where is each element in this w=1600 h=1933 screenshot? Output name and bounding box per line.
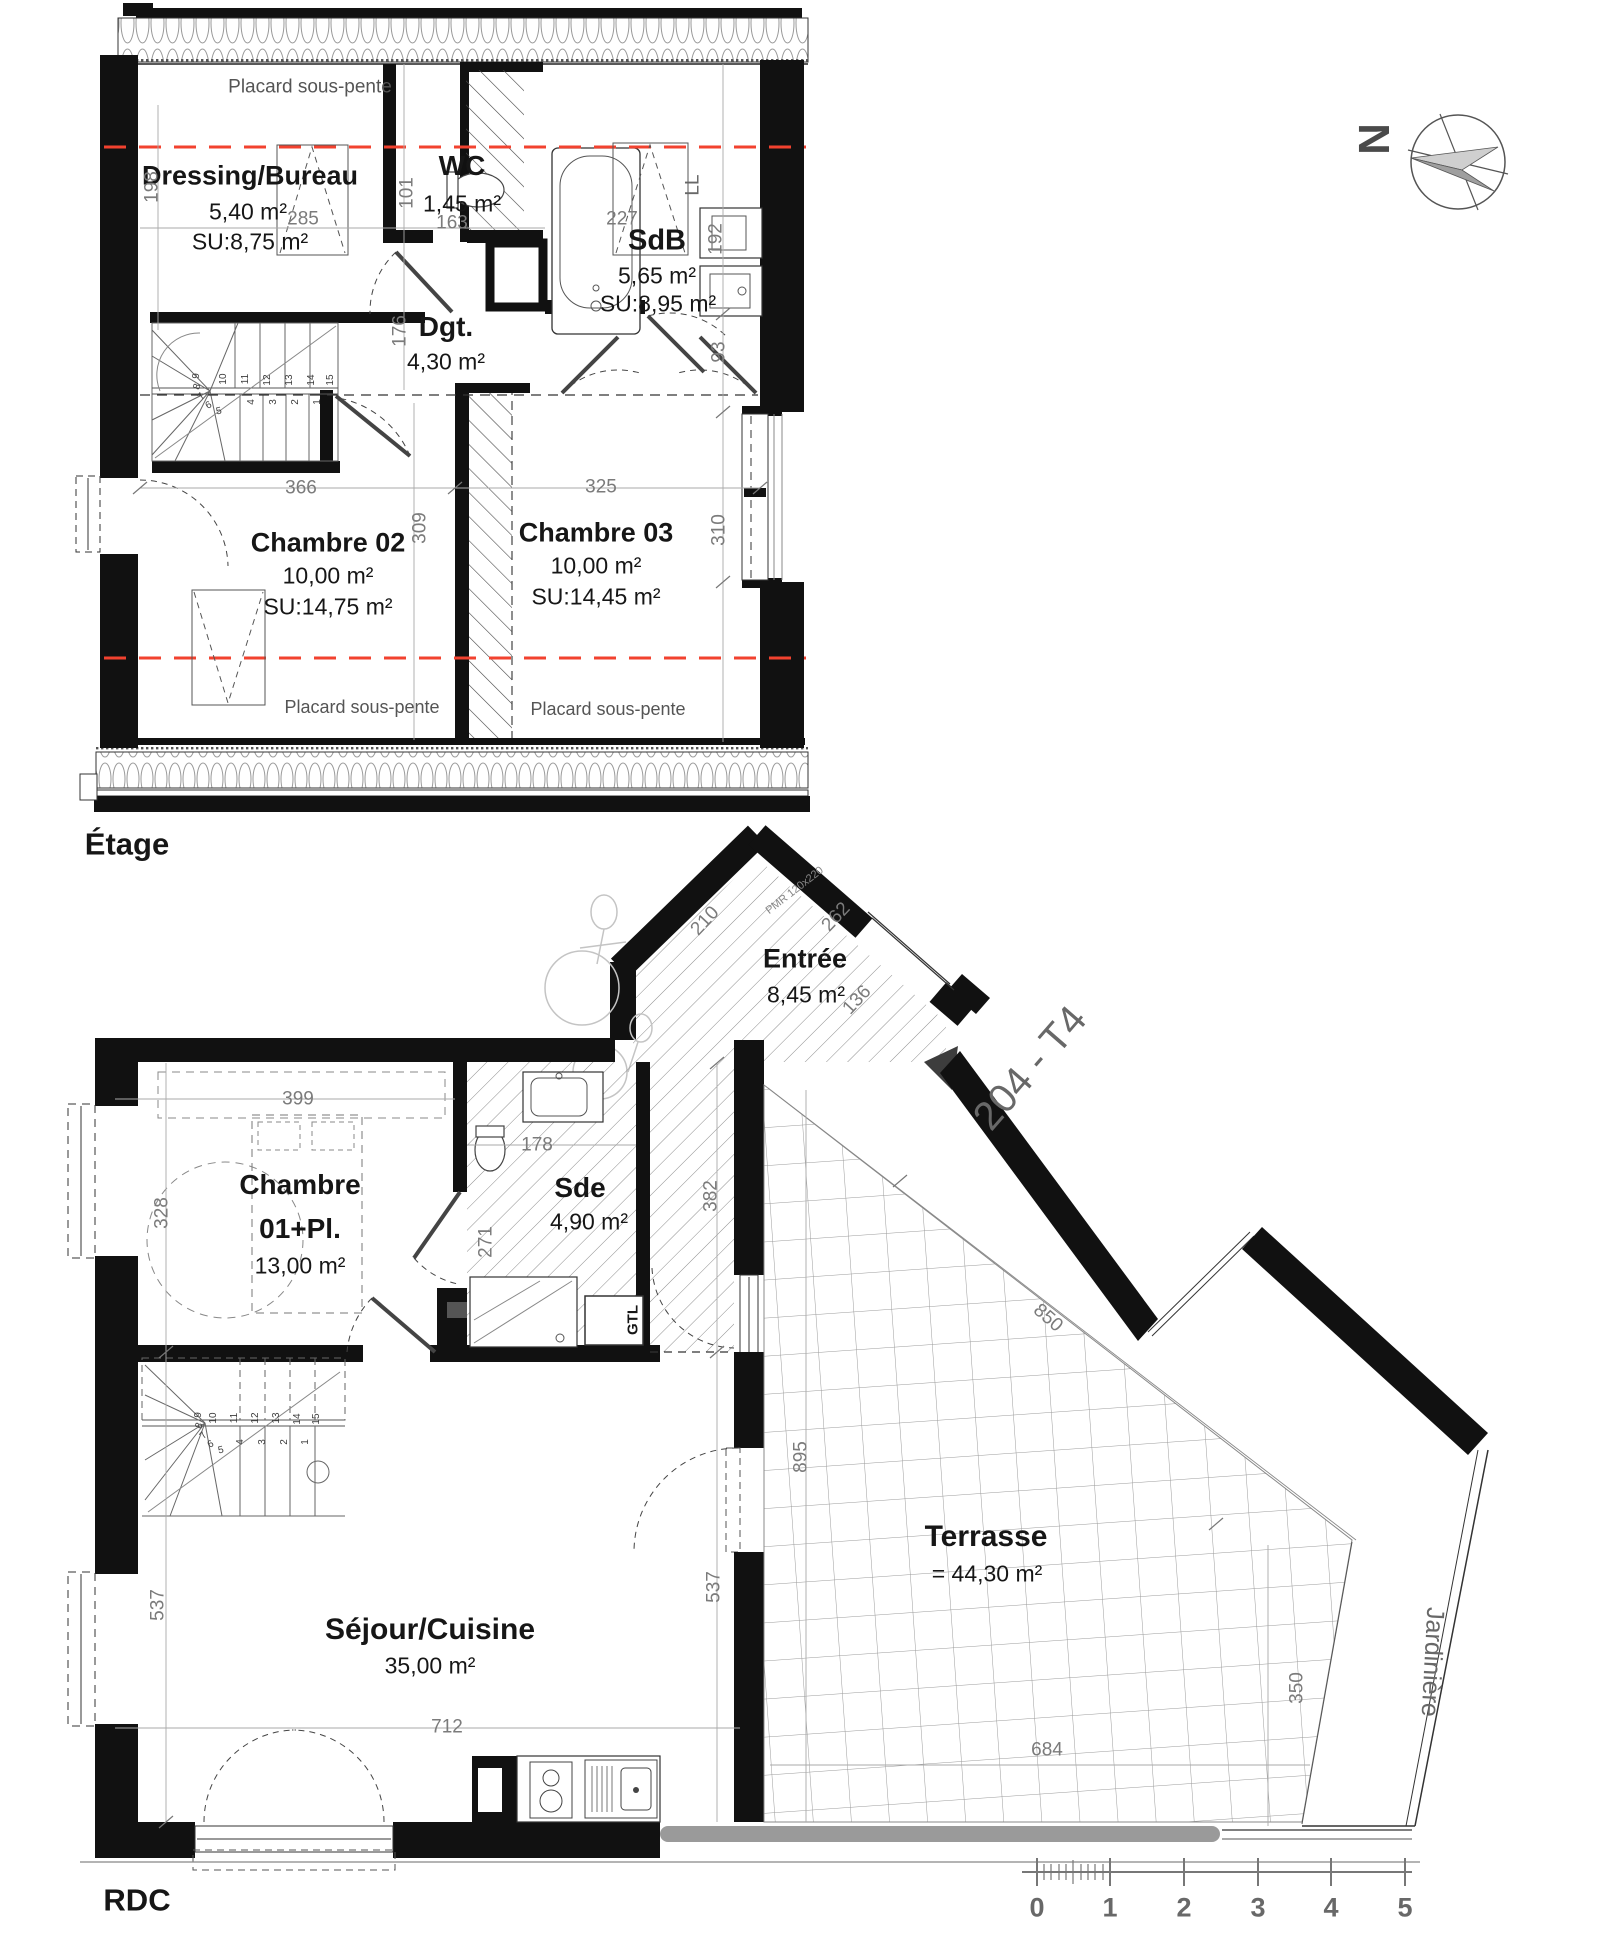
dimension-label: 382 — [702, 1180, 721, 1212]
dimension-label: 325 — [585, 478, 617, 497]
dimension-label: 310 — [710, 514, 729, 546]
dimension-label: 178 — [521, 1136, 553, 1155]
room-chambre03-name: Chambre 03 — [519, 520, 674, 547]
dimension-label: 366 — [285, 479, 317, 498]
stair-step-number: 11 — [230, 1413, 240, 1423]
room-chambre01-name-line2: 01+Pl. — [259, 1215, 341, 1243]
room-sdb-name: SdB — [628, 227, 686, 256]
placard-bottom-right-label: Placard sous-pente — [530, 700, 685, 718]
room-sde-area: 4,90 m² — [550, 1211, 628, 1234]
stair-step-number: 5 — [215, 407, 223, 418]
stair-step-number: 4 — [247, 399, 257, 405]
stair-step-number: 15 — [312, 1413, 322, 1424]
scale-label-4: 4 — [1323, 1895, 1338, 1922]
stair-step-number: 3 — [269, 399, 279, 405]
room-terrasse-area: = 44,30 m² — [932, 1563, 1043, 1586]
dimension-label: 227 — [606, 210, 638, 229]
dimension-label: 176 — [391, 315, 410, 347]
room-chambre03-su: SU:14,45 m² — [531, 586, 660, 609]
room-dgt-name: Dgt. — [419, 313, 473, 341]
stair-step-number: 14 — [307, 374, 317, 385]
dimension-label: 163 — [436, 214, 468, 233]
compass-north-label: N — [1353, 123, 1397, 155]
dimension-label: 399 — [282, 1090, 314, 1109]
room-entree-name: Entrée — [763, 946, 847, 973]
room-dgt-area: 4,30 m² — [407, 351, 485, 374]
stair-step-number: 12 — [263, 374, 273, 385]
placard-bottom-left-label: Placard sous-pente — [284, 698, 439, 716]
dimension-label: 192 — [707, 223, 726, 255]
stair-step-number: 13 — [272, 1412, 282, 1423]
etage-plan — [76, 3, 810, 812]
room-chambre01-name-line1: Chambre — [239, 1171, 360, 1199]
jardiniere-label: Jardinière — [1417, 1607, 1448, 1718]
stair-step-number: 2 — [291, 399, 301, 405]
room-chambre01-area: 13,00 m² — [255, 1255, 346, 1278]
scale-label-5: 5 — [1397, 1895, 1412, 1922]
dimension-label: 328 — [153, 1197, 172, 1229]
room-sdb-area: 5,65 m² — [618, 265, 696, 288]
room-chambre02-su: SU:14,75 m² — [263, 596, 392, 619]
dimension-label: 537 — [705, 1571, 724, 1603]
etage-floor-label: Étage — [85, 829, 169, 860]
room-sde-name: Sde — [554, 1174, 605, 1202]
stair-step-number: 15 — [326, 374, 336, 385]
dimension-label: 537 — [149, 1589, 168, 1621]
room-dressing-su: SU:8,75 m² — [192, 231, 308, 254]
dimension-label: 350 — [1288, 1672, 1307, 1704]
dimension-label: 895 — [792, 1441, 811, 1473]
dimension-label: 93 — [710, 341, 729, 362]
scale-label-3: 3 — [1250, 1895, 1265, 1922]
stair-step-number: 3 — [258, 1439, 268, 1445]
gtl-label: GTL — [626, 1305, 641, 1335]
stair-step-number: 2 — [280, 1439, 290, 1445]
dimension-label: 271 — [477, 1226, 496, 1258]
stair-step-number: 9 — [192, 373, 202, 379]
stair-step-number: 5 — [217, 1446, 225, 1457]
room-dressing-name: Dressing/Bureau — [142, 163, 358, 190]
dimension-label: 198 — [143, 171, 162, 203]
stair-step-number: 14 — [293, 1413, 303, 1424]
stair-step-number: 10 — [209, 1412, 219, 1423]
floorplan-page: Placard sous-pente Dressing/Bureau 5,40 … — [0, 0, 1600, 1933]
room-chambre03-area: 10,00 m² — [551, 555, 642, 578]
room-chambre02-area: 10,00 m² — [283, 565, 374, 588]
room-chambre02-name: Chambre 02 — [251, 530, 406, 557]
washer-label: LL — [684, 174, 703, 195]
room-terrasse-name: Terrasse — [925, 1522, 1048, 1552]
stair-step-number: 1 — [313, 399, 323, 405]
stair-step-number: 13 — [285, 374, 295, 385]
dimension-label: 101 — [398, 177, 417, 209]
dimension-label: 684 — [1031, 1741, 1063, 1760]
dimension-label: 712 — [431, 1718, 463, 1737]
room-entree-area: 8,45 m² — [767, 984, 845, 1007]
room-sdb-su: SU:8,95 m² — [600, 293, 716, 316]
dimension-label: 285 — [287, 210, 319, 229]
scale-label-0: 0 — [1029, 1895, 1044, 1922]
compass-icon — [1408, 114, 1508, 210]
rdc-floor-label: RDC — [103, 1885, 170, 1916]
dimension-label: 309 — [411, 512, 430, 544]
room-sejour-area: 35,00 m² — [385, 1655, 476, 1678]
scale-label-1: 1 — [1102, 1895, 1117, 1922]
stair-step-number: 9 — [194, 1412, 204, 1418]
stair-step-number: 1 — [301, 1439, 311, 1445]
placard-top-label: Placard sous-pente — [228, 78, 392, 97]
stair-step-number: 11 — [241, 374, 251, 384]
scale-label-2: 2 — [1176, 1895, 1191, 1922]
rdc-stairs — [142, 1358, 345, 1516]
stair-step-number: 10 — [219, 373, 229, 384]
stair-step-number: 12 — [251, 1412, 261, 1423]
room-sejour-name: Séjour/Cuisine — [325, 1615, 535, 1645]
room-dressing-area: 5,40 m² — [209, 201, 287, 224]
room-wc-name: WC — [439, 152, 486, 180]
stair-step-number: 4 — [236, 1439, 246, 1445]
